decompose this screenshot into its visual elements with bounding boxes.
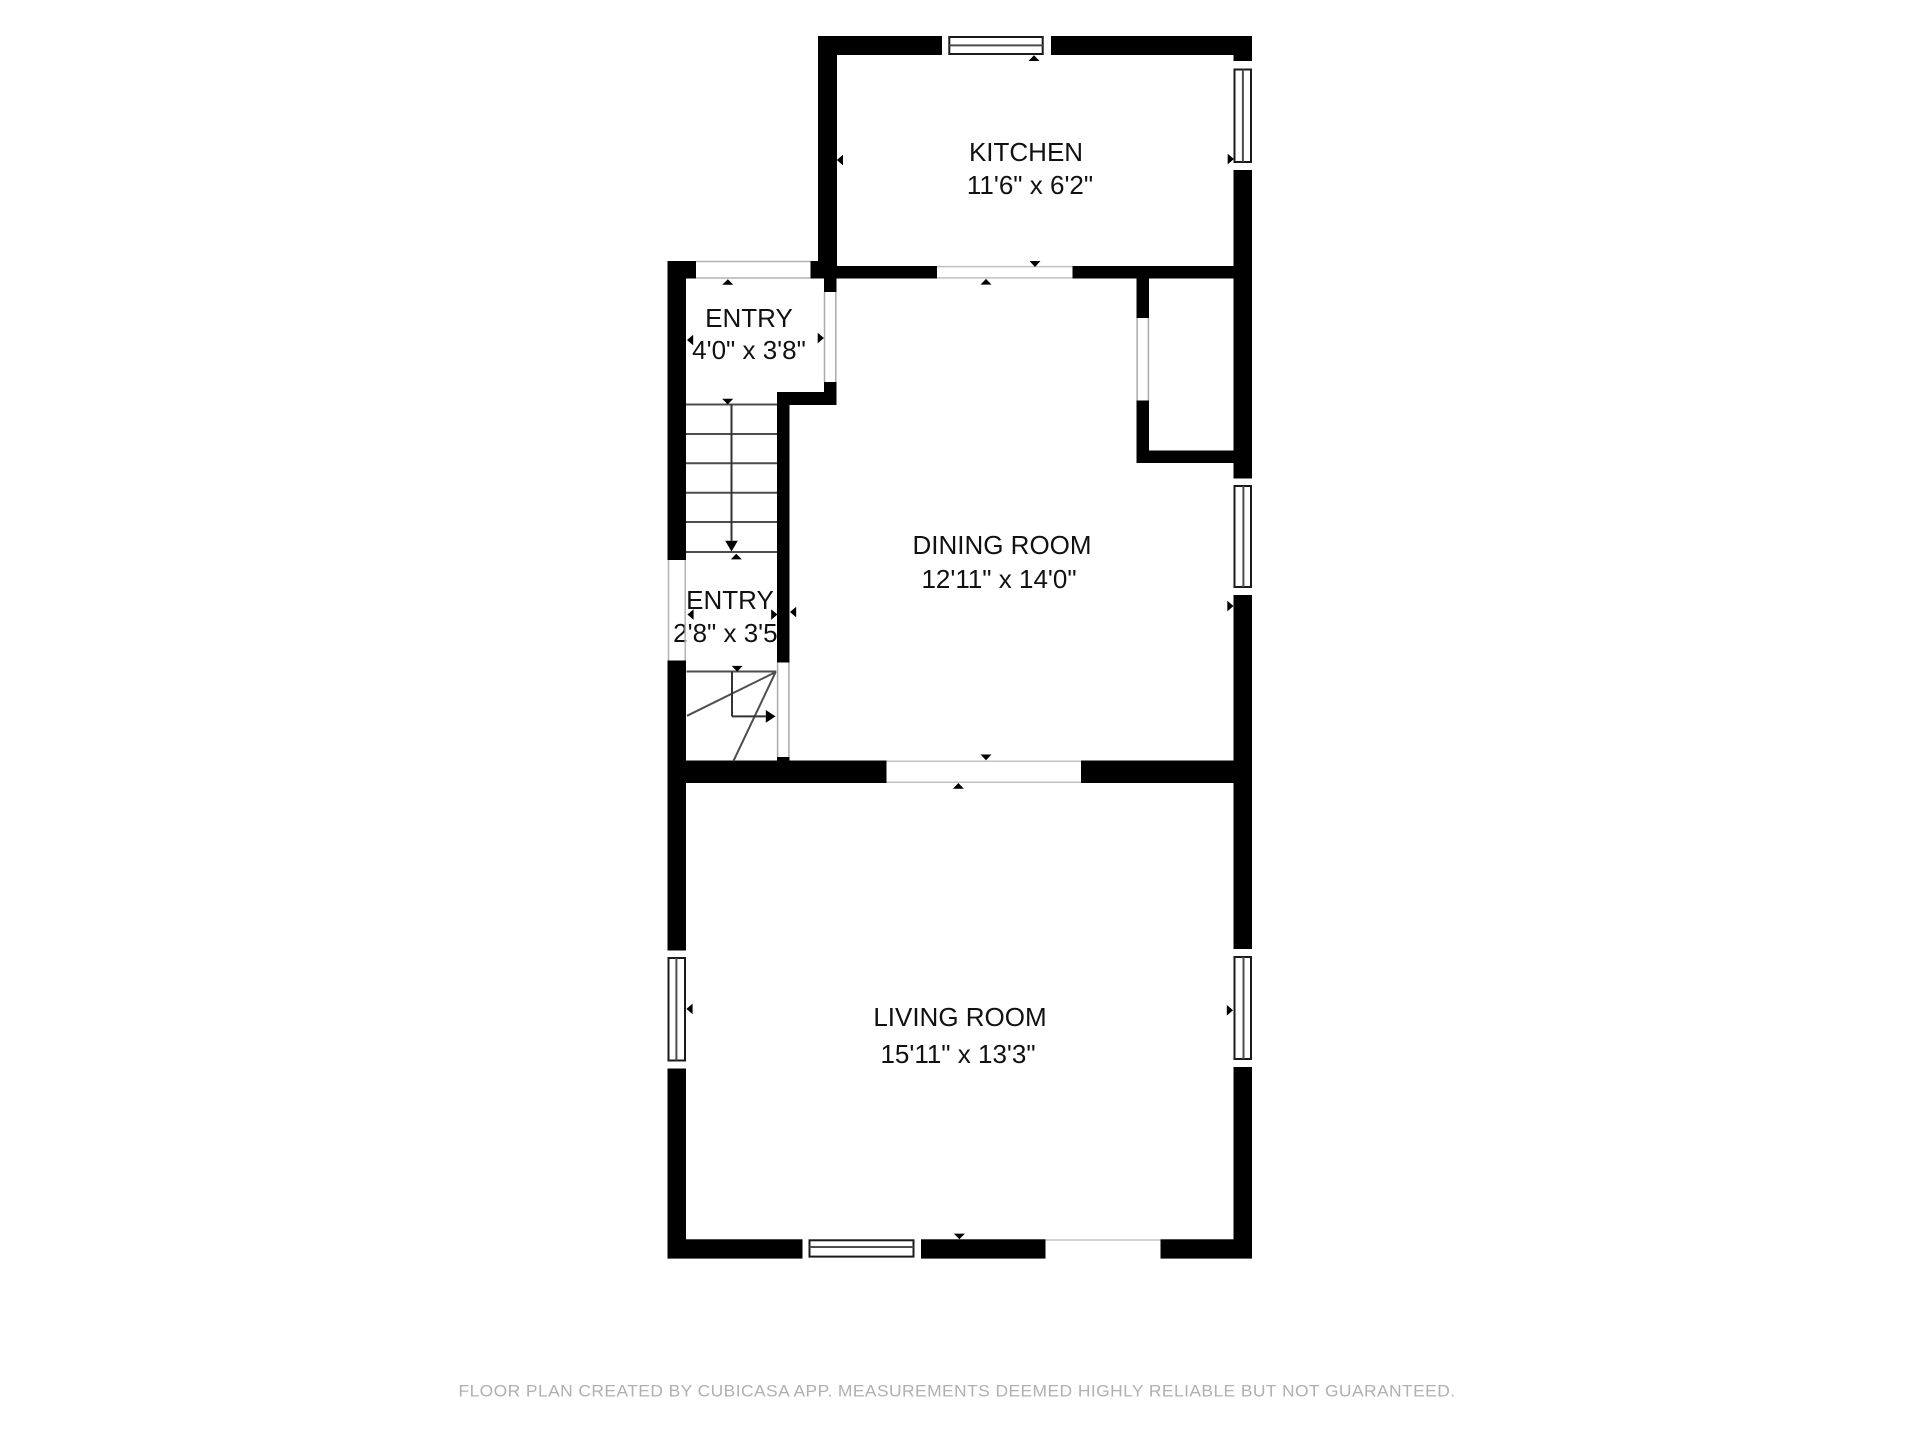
svg-text:LIVING ROOM: LIVING ROOM (873, 1002, 1046, 1032)
svg-text:2'8" x 3'5": 2'8" x 3'5" (673, 618, 787, 648)
svg-text:ENTRY: ENTRY (686, 585, 774, 615)
svg-text:ENTRY: ENTRY (705, 303, 793, 333)
svg-text:DINING ROOM: DINING ROOM (912, 530, 1091, 560)
svg-text:15'11" x 13'3": 15'11" x 13'3" (880, 1039, 1035, 1069)
svg-text:KITCHEN: KITCHEN (969, 137, 1083, 167)
svg-text:FLOOR PLAN CREATED BY CUBICASA: FLOOR PLAN CREATED BY CUBICASA APP. MEAS… (459, 1383, 1456, 1401)
svg-text:11'6" x 6'2": 11'6" x 6'2" (967, 170, 1093, 200)
svg-text:4'0" x 3'8": 4'0" x 3'8" (692, 335, 806, 365)
svg-text:12'11" x 14'0": 12'11" x 14'0" (921, 564, 1076, 594)
